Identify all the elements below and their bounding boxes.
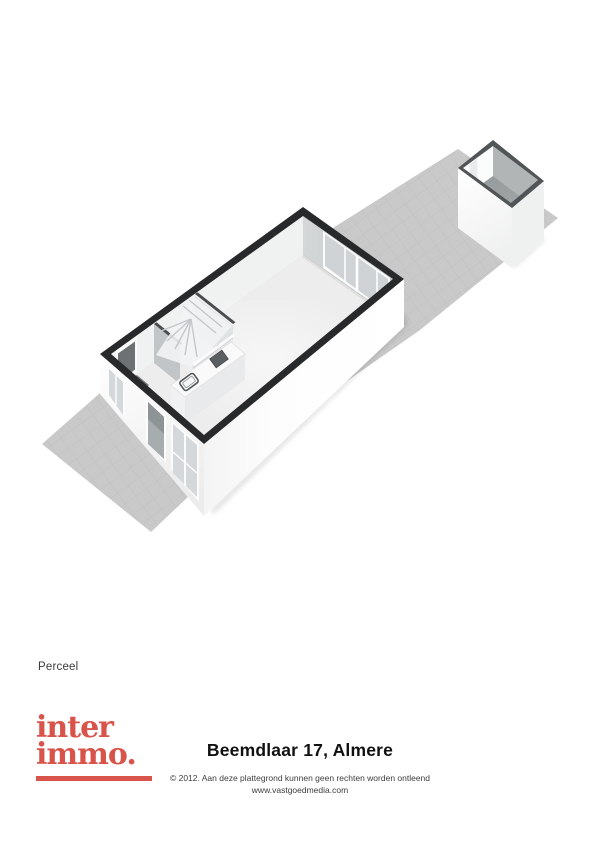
copyright-line2: www.vastgoedmedia.com	[150, 784, 450, 796]
interimmo-logo: inter immo.	[36, 714, 152, 781]
footer: Beemdlaar 17, Almere © 2012. Aan deze pl…	[150, 740, 450, 796]
copyright-line1: © 2012. Aan deze plattegrond kunnen geen…	[150, 772, 450, 784]
address-title: Beemdlaar 17, Almere	[150, 740, 450, 761]
logo-underline	[36, 776, 152, 781]
floor-plan-3d	[0, 0, 600, 620]
plan-label: Perceel	[38, 661, 78, 673]
copyright: © 2012. Aan deze plattegrond kunnen geen…	[150, 772, 450, 796]
logo-line2: immo.	[36, 741, 152, 768]
